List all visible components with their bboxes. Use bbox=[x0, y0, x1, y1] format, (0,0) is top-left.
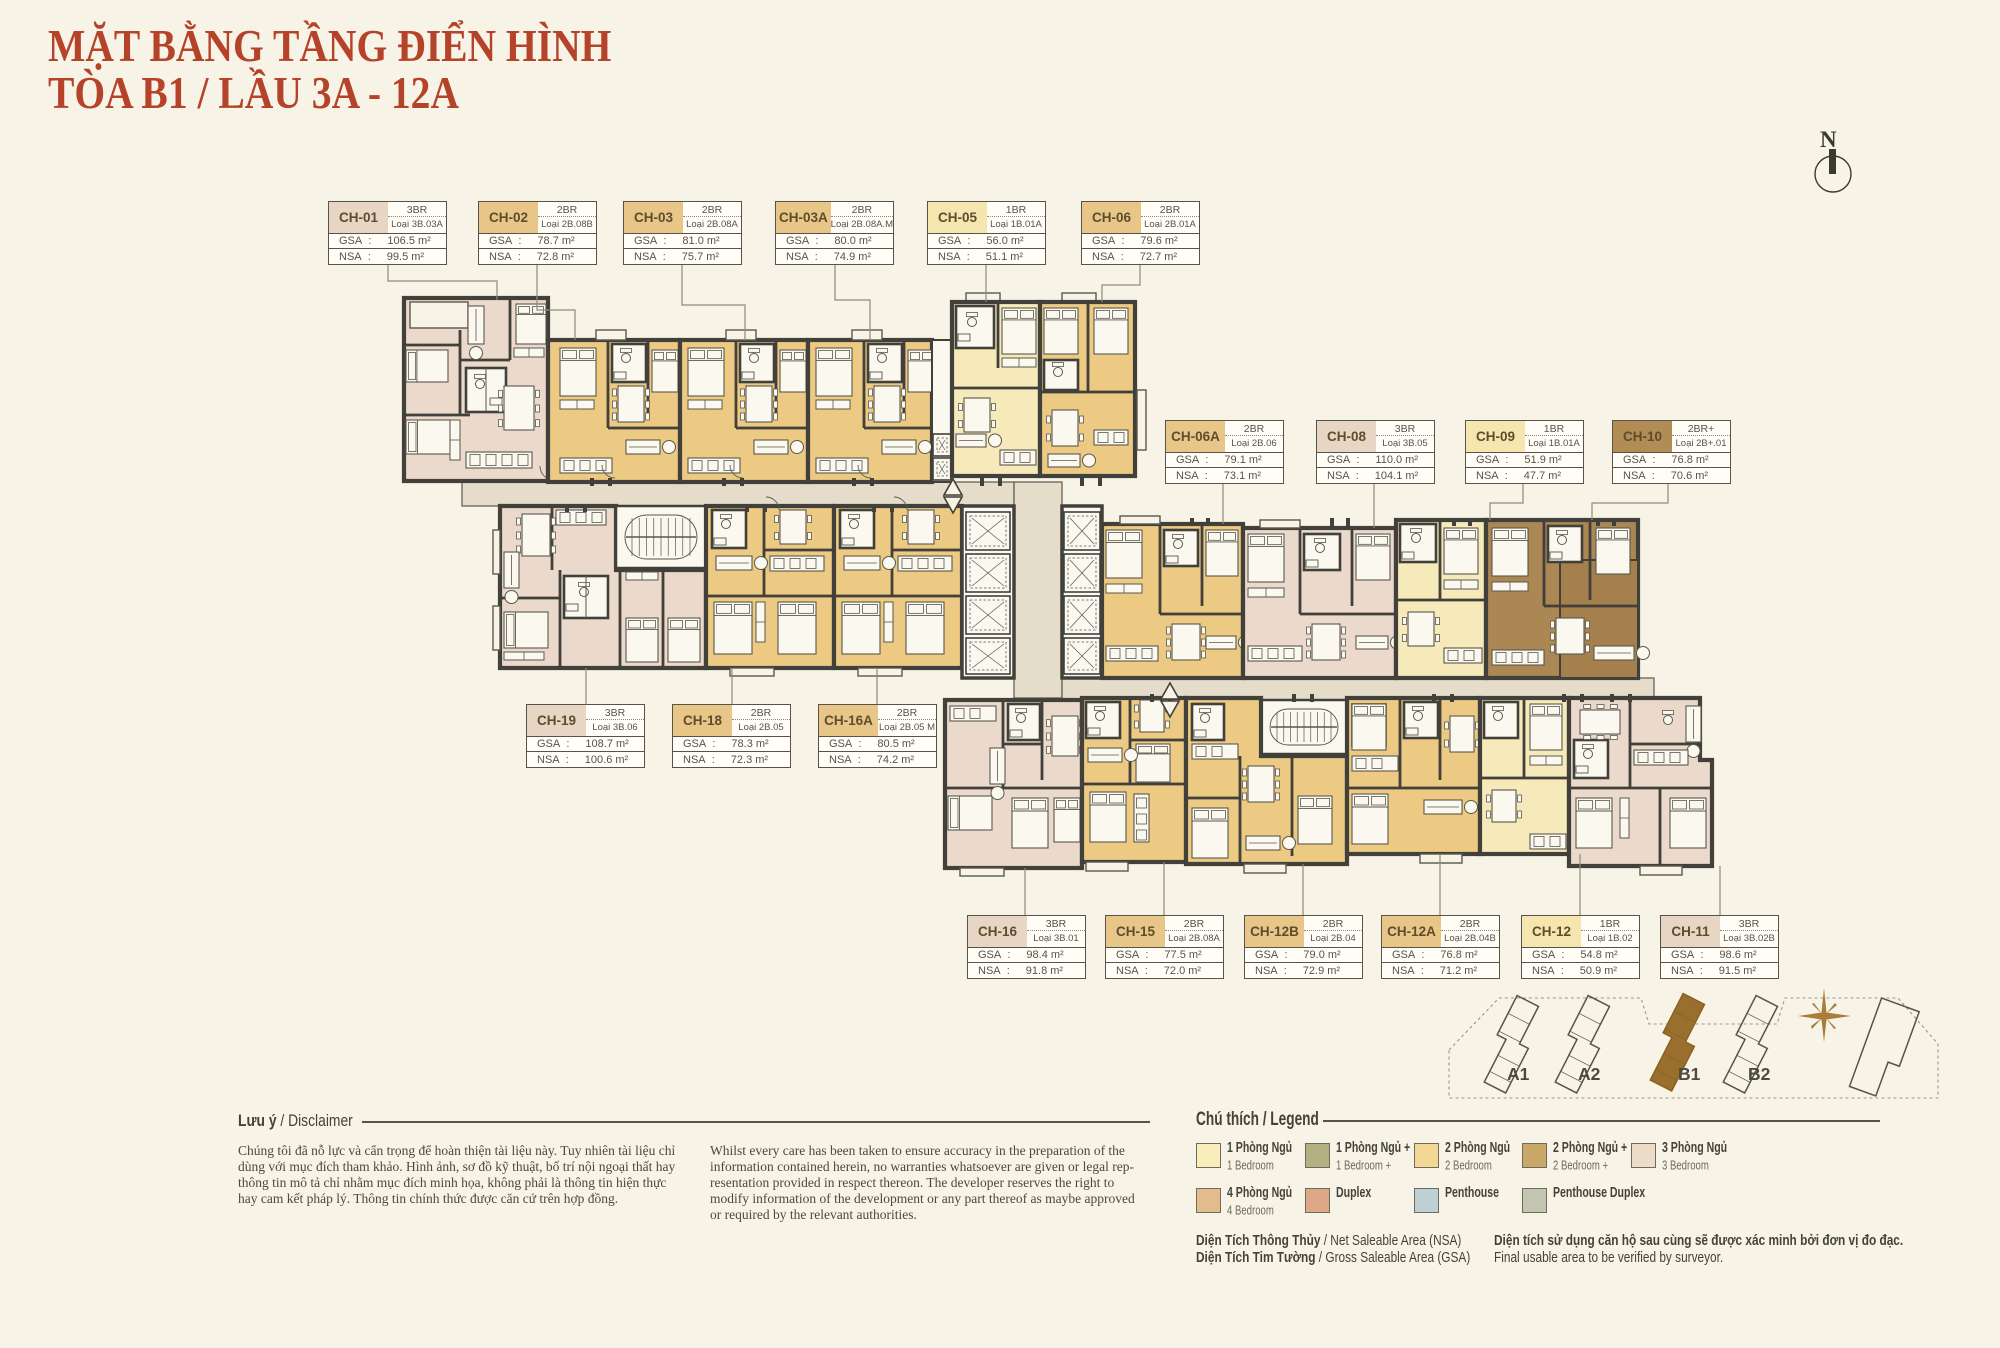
svg-text:B2: B2 bbox=[1748, 1064, 1771, 1084]
svg-text:N: N bbox=[1820, 127, 1837, 152]
svg-text:A1: A1 bbox=[1507, 1064, 1530, 1084]
svg-text:A2: A2 bbox=[1578, 1064, 1601, 1084]
svg-text:B1: B1 bbox=[1678, 1064, 1701, 1084]
